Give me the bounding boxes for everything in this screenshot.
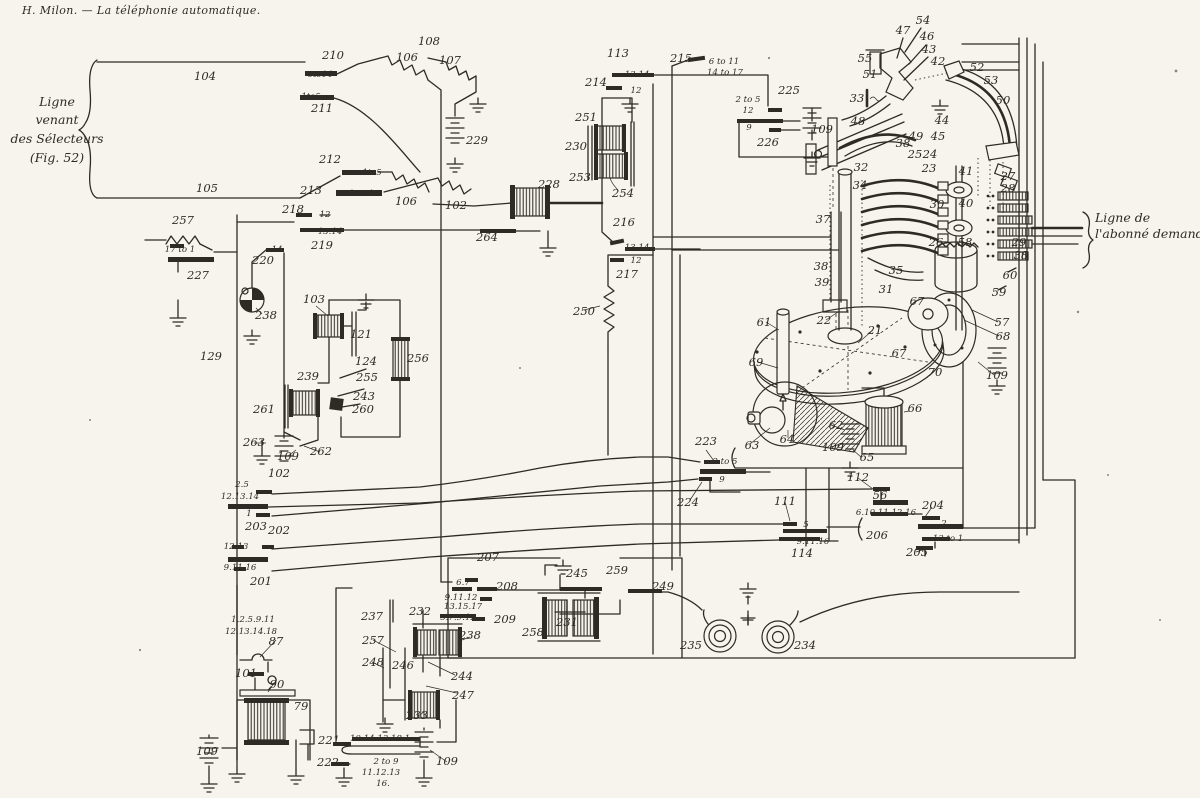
part-label: 59 bbox=[992, 285, 1007, 299]
part-label: 113 bbox=[607, 46, 629, 60]
part-label: 206 bbox=[865, 528, 888, 542]
part-label: 219 bbox=[310, 238, 333, 252]
part-label: 245 bbox=[565, 566, 588, 580]
part-label: 234 bbox=[793, 638, 816, 652]
part-label: 16. bbox=[376, 779, 390, 789]
part-label: 13.14 bbox=[318, 227, 343, 237]
part-label: 225 bbox=[777, 83, 800, 97]
part-label: 224 bbox=[676, 495, 699, 509]
page-header: H. Milon. — La téléphonie automatique. bbox=[21, 4, 261, 17]
part-label: 79 bbox=[294, 699, 309, 713]
part-label: 2 to 9 bbox=[372, 757, 399, 767]
part-label: 23 bbox=[921, 161, 937, 175]
part-label: 207 bbox=[476, 550, 500, 564]
part-label: 61 bbox=[757, 315, 772, 329]
part-label: 38 bbox=[814, 259, 829, 273]
part-label: 42 bbox=[930, 54, 946, 68]
part-label: 203 bbox=[244, 519, 267, 533]
part-label: 26 bbox=[928, 235, 944, 249]
part-label: 213 bbox=[299, 183, 322, 197]
part-label: 257 bbox=[171, 213, 195, 227]
part-label: 11.12.13 bbox=[362, 768, 401, 778]
part-label: 9 bbox=[719, 475, 725, 485]
part-label: 124 bbox=[355, 354, 377, 368]
part-label: 66 bbox=[908, 401, 923, 415]
part-label: 249 bbox=[651, 579, 674, 593]
part-label: 65 bbox=[860, 450, 875, 464]
part-label: 22 bbox=[816, 313, 832, 327]
part-label: 255 bbox=[355, 370, 378, 384]
part-label: 29 bbox=[1011, 235, 1027, 249]
caption-line: Ligne bbox=[38, 94, 75, 109]
part-label: 235 bbox=[679, 638, 702, 652]
part-label: 109 bbox=[436, 754, 458, 768]
part-label: 1 bbox=[246, 509, 251, 519]
part-label: 248 bbox=[361, 655, 384, 669]
part-label: 109 bbox=[277, 449, 299, 463]
part-label: 121 bbox=[350, 327, 372, 341]
part-label: 106 bbox=[396, 50, 418, 64]
part-label: 210 bbox=[321, 48, 344, 62]
part-label: 25 bbox=[907, 147, 923, 161]
part-label: 218 bbox=[281, 202, 304, 216]
part-label: 12 bbox=[631, 256, 642, 266]
part-label: 212 bbox=[318, 152, 341, 166]
part-label: 109 bbox=[811, 122, 833, 136]
caption-line: Ligne de bbox=[1094, 210, 1150, 225]
part-label: 45 bbox=[930, 129, 946, 143]
part-label: 21 bbox=[867, 323, 883, 337]
part-label: 109 bbox=[196, 744, 218, 758]
part-label: 106 bbox=[395, 194, 417, 208]
part-label: 229 bbox=[465, 133, 488, 147]
part-label: 216 bbox=[612, 215, 635, 229]
part-label: 56 bbox=[873, 488, 888, 502]
part-label: 102 bbox=[268, 466, 290, 480]
part-label: 46 bbox=[919, 29, 935, 43]
part-label: 105 bbox=[196, 181, 218, 195]
part-label: 222 bbox=[316, 755, 339, 769]
part-label: 9.11.16 bbox=[224, 563, 257, 573]
part-label: 202 bbox=[267, 523, 290, 537]
part-label: 238 bbox=[254, 308, 277, 322]
part-label: 243 bbox=[352, 389, 375, 403]
caption-line: des Sélecteurs bbox=[10, 131, 103, 146]
coil-66 bbox=[862, 388, 906, 454]
part-label: 259 bbox=[605, 563, 628, 577]
part-label: 111 bbox=[774, 494, 796, 508]
part-label: 2 bbox=[940, 519, 946, 529]
part-label: 5.7.9.12 bbox=[440, 613, 476, 623]
disc-hub bbox=[828, 328, 862, 344]
part-label: 251 bbox=[574, 110, 597, 124]
part-label: 47 bbox=[895, 23, 911, 37]
part-label: 227 bbox=[186, 268, 210, 282]
part-label: 58 bbox=[958, 235, 973, 249]
part-label: 35 bbox=[889, 263, 904, 277]
caption-line: (Fig. 52) bbox=[30, 150, 84, 165]
part-label: 67 bbox=[892, 346, 907, 360]
part-label: 109 bbox=[822, 440, 844, 454]
part-label: 12.13.14 bbox=[221, 492, 259, 502]
part-label: 68 bbox=[996, 329, 1011, 343]
part-label: 247 bbox=[451, 688, 475, 702]
part-label: 14 to 17 bbox=[707, 68, 743, 78]
part-label: 6to14 bbox=[307, 70, 332, 80]
part-label: 237 bbox=[360, 609, 384, 623]
part-label: 53 bbox=[984, 73, 999, 87]
part-label: 48 bbox=[850, 114, 866, 128]
part-label: 13.14 bbox=[625, 70, 650, 80]
part-label: 232 bbox=[408, 604, 431, 618]
part-label: 9 bbox=[746, 123, 752, 133]
part-label: 214 bbox=[584, 75, 607, 89]
part-label: 261 bbox=[252, 402, 275, 416]
part-label: 215 bbox=[669, 51, 692, 65]
part-label: 17 to 1 bbox=[165, 245, 196, 255]
part-label: 109 bbox=[986, 368, 1008, 382]
part-label: 254 bbox=[611, 186, 634, 200]
part-label: 15to18 bbox=[349, 189, 380, 199]
part-label: 208 bbox=[495, 579, 518, 593]
part-label: 204 bbox=[921, 498, 944, 512]
caption-line: venant bbox=[35, 112, 79, 127]
part-label: 102 bbox=[445, 198, 467, 212]
part-label: 51 bbox=[863, 67, 878, 81]
part-label: 31 bbox=[879, 282, 894, 296]
part-label: 231 bbox=[555, 615, 578, 629]
part-label: 12 bbox=[631, 86, 642, 96]
part-label: 60 bbox=[1003, 268, 1018, 282]
part-label: 62 bbox=[829, 418, 844, 432]
part-label: 38 bbox=[1014, 248, 1029, 262]
part-label: 262 bbox=[309, 444, 332, 458]
part-label: 112 bbox=[847, 470, 869, 484]
part-label: 220 bbox=[251, 253, 274, 267]
part-label: 13 to 1 bbox=[933, 534, 964, 544]
part-label: 250 bbox=[572, 304, 595, 318]
part-label: 253 bbox=[568, 170, 591, 184]
part-label: 2.5 bbox=[234, 480, 249, 490]
part-label: 52 bbox=[970, 60, 985, 74]
caption-line: l'abonné demandé bbox=[1095, 226, 1200, 241]
part-label: 103 bbox=[303, 292, 325, 306]
schematic-figure: H. Milon. — La téléphonie automatique. L… bbox=[0, 0, 1200, 798]
part-label: 5 bbox=[803, 520, 808, 530]
part-label: 209 bbox=[493, 612, 516, 626]
part-label: 217 bbox=[615, 267, 639, 281]
paper-background bbox=[0, 0, 1200, 798]
part-label: 10.14.13.18.1 bbox=[350, 734, 410, 744]
part-label: 90 bbox=[270, 677, 285, 691]
part-label: 34 bbox=[853, 178, 868, 192]
part-label: 260 bbox=[351, 402, 374, 416]
part-label: 129 bbox=[200, 349, 222, 363]
part-label: 41 bbox=[958, 164, 974, 178]
part-label: 230 bbox=[564, 139, 587, 153]
part-label: 114 bbox=[791, 546, 813, 560]
part-label: 50 bbox=[996, 93, 1011, 107]
part-label: 258 bbox=[521, 625, 544, 639]
part-label: 263 bbox=[242, 435, 265, 449]
part-label: 12 bbox=[743, 106, 754, 116]
part-label: 2 to 5 bbox=[734, 95, 760, 105]
part-label: 107 bbox=[439, 53, 462, 67]
part-label: 44 bbox=[934, 113, 950, 127]
part-label: 40 bbox=[958, 196, 974, 210]
part-label: 57 bbox=[995, 315, 1010, 329]
part-label: 246 bbox=[391, 658, 414, 672]
part-label: 244 bbox=[450, 669, 473, 683]
part-label: 32 bbox=[854, 160, 869, 174]
part-label: 55 bbox=[858, 51, 873, 65]
part-label: 221 bbox=[317, 733, 340, 747]
part-label: 12 bbox=[320, 210, 331, 220]
part-label: 1.2.5.9.11 bbox=[231, 615, 275, 625]
part-label: 33 bbox=[850, 91, 865, 105]
part-label: 205 bbox=[905, 545, 928, 559]
part-label: 228 bbox=[537, 177, 560, 191]
part-label: 223 bbox=[694, 434, 717, 448]
part-label: 1to5 bbox=[362, 168, 382, 178]
part-label: 108 bbox=[418, 34, 440, 48]
part-label: 257 bbox=[361, 633, 385, 647]
part-label: 12.13 bbox=[224, 542, 249, 552]
part-label: 37 bbox=[816, 212, 831, 226]
part-label: 64 bbox=[780, 432, 795, 446]
part-label: 67 bbox=[910, 294, 925, 308]
part-label: 6.7 bbox=[456, 578, 470, 588]
part-label: 2 to 5 bbox=[711, 457, 737, 467]
part-label: 28 bbox=[1000, 181, 1016, 195]
part-label: 104 bbox=[194, 69, 216, 83]
part-label: 233 bbox=[405, 708, 428, 722]
part-label: 211 bbox=[310, 101, 333, 115]
part-label: 30 bbox=[930, 197, 945, 211]
part-label: 63 bbox=[745, 438, 760, 452]
part-label: 70 bbox=[928, 365, 943, 379]
part-label: 256 bbox=[406, 351, 429, 365]
part-label: 201 bbox=[249, 574, 272, 588]
part-label: 69 bbox=[749, 355, 764, 369]
part-label: 6 to 11 bbox=[709, 57, 740, 67]
part-label: 238 bbox=[458, 628, 481, 642]
part-label: 6.10.11.12.16 bbox=[856, 508, 917, 518]
part-label: 24 bbox=[922, 147, 938, 161]
contact-blob bbox=[329, 397, 344, 411]
part-label: 13.14 bbox=[625, 243, 650, 253]
part-label: 101 bbox=[235, 666, 257, 680]
part-label: 239 bbox=[296, 369, 319, 383]
part-label: 264 bbox=[475, 230, 498, 244]
part-label: 87 bbox=[269, 634, 284, 648]
part-label: 226 bbox=[756, 135, 779, 149]
part-label: 39 bbox=[815, 275, 830, 289]
part-label: 13.15.17 bbox=[444, 602, 483, 612]
part-label: 54 bbox=[916, 13, 931, 27]
